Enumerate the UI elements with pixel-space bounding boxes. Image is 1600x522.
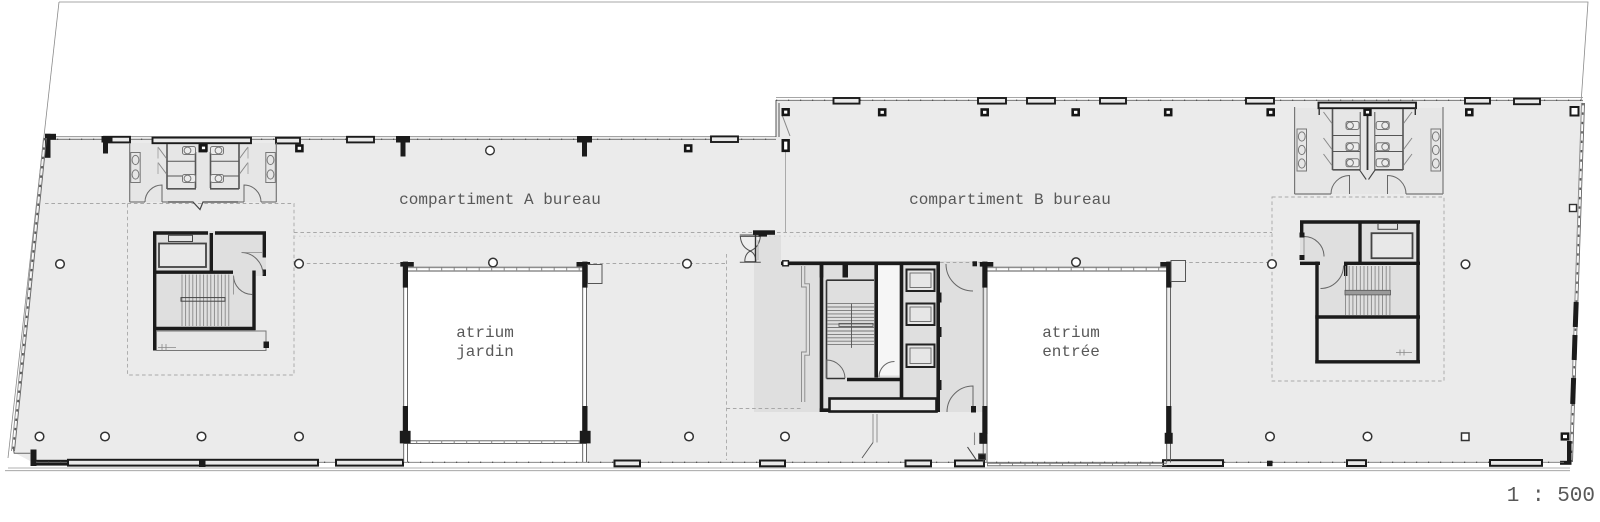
svg-text:atrium: atrium [1042,324,1100,342]
svg-text:compartiment B bureau: compartiment B bureau [909,191,1111,209]
svg-text:compartiment A bureau: compartiment A bureau [399,191,601,209]
svg-text:entrée: entrée [1042,343,1100,361]
svg-text:1 : 500: 1 : 500 [1507,485,1595,508]
svg-text:atrium: atrium [456,324,514,342]
svg-text:jardin: jardin [456,343,514,361]
